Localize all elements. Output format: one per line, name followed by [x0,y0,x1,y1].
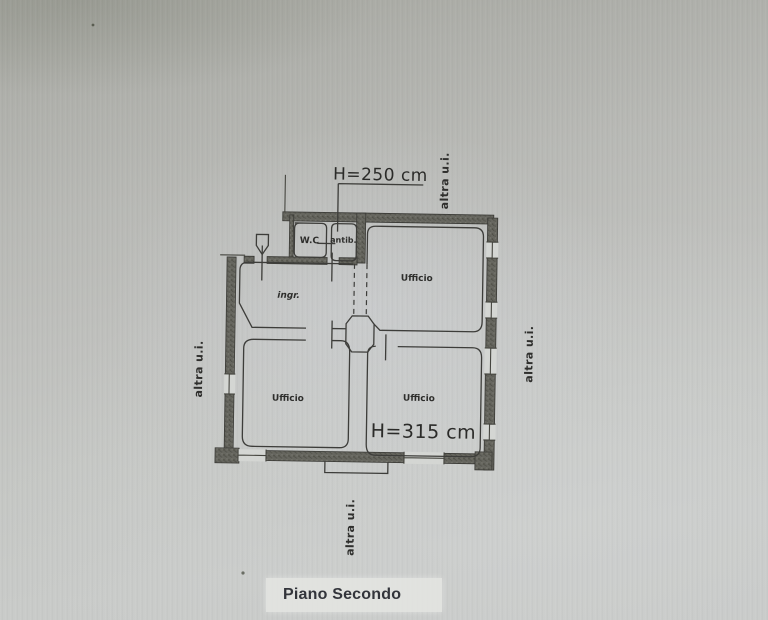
wall-antib-right [356,213,366,263]
dashed-partition-line [354,264,355,315]
scanned-floorplan-page: { "page": { "floor_label": "Piano Second… [0,0,768,620]
dimension-lower-label: H=315 cm [371,420,477,444]
adjacent-unit-label-bottom: altra u.i. [343,499,357,556]
adjacent-unit-label-left: altra u.i. [192,340,206,397]
wall-left [224,257,236,457]
floor-title-label: Piano Secondo [283,586,401,604]
boundary-line-top [285,175,286,212]
adjacent-unit-label-right: altra u.i. [522,325,536,382]
plan-group: H=250 cm H=315 cm W.C antib. ingr. Uffic… [189,148,538,558]
window-bottom-1 [238,449,266,461]
adjacent-unit-label-top: altra u.i. [438,152,452,209]
wall-corner-bottom-left [215,448,239,463]
room-label-ufficio-bottom-left: Ufficio [272,394,304,405]
room-label-ufficio-top-right: Ufficio [401,274,433,285]
wall-step-bottom [325,461,388,473]
window-bottom-2 [404,452,444,465]
room-label-ingr: ingr. [277,291,300,301]
paper-speck [241,571,244,574]
paper-speck [92,24,95,27]
window-left-1 [224,374,235,394]
center-hub-outline [346,316,375,352]
window-right-1 [486,242,498,258]
floor-title-box: Piano Secondo [266,578,442,612]
window-right-4 [483,424,495,440]
wall-top [283,212,494,224]
entrance-door-line [262,245,263,280]
room-label-ufficio-bottom-right: Ufficio [403,394,435,405]
dashed-partition-line [366,264,367,315]
window-right-3 [484,348,496,374]
wall-wc-left [289,215,294,261]
window-right-2 [485,302,497,318]
room-label-wc: W.C [300,236,320,246]
floor-plan-drawing: H=250 cm H=315 cm W.C antib. ingr. Uffic… [0,0,768,620]
room-label-antib: antib. [330,236,357,245]
dimension-leader-line [338,184,424,233]
dimension-upper-label: H=250 cm [333,165,428,186]
